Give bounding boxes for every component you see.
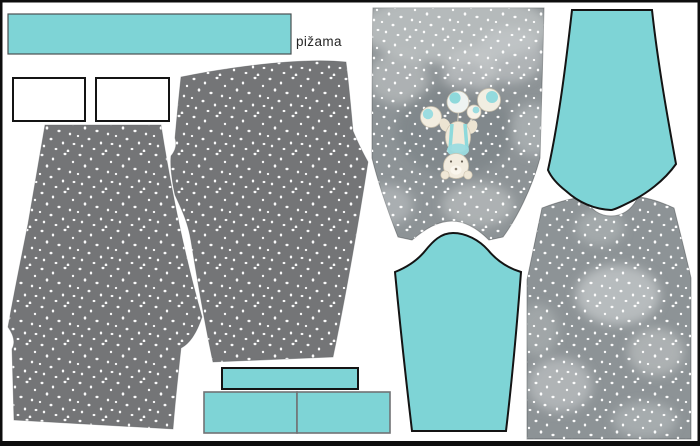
piece-sleeve-top-right [548,10,676,210]
panel-label: pižama [296,34,342,49]
piece-cuff-bar [222,368,358,389]
back-bodice-texture [518,190,700,446]
piece-pocket-rectangle-1 [13,78,85,121]
piece-front-bodice [360,0,555,260]
front-bodice-texture [360,0,555,260]
piece-cuff-right [297,392,390,433]
piece-neckband-strip [8,14,291,54]
piece-back-bodice [518,190,700,446]
piece-pocket-rectangle-2 [96,78,169,121]
sheet-bottom-border-bar [0,441,700,446]
fabric-panel-sheet: pižama [0,0,700,446]
piece-cuff-left [204,392,297,433]
panel-svg: pižama [0,0,700,446]
piece-sleeve-bottom [395,233,521,431]
